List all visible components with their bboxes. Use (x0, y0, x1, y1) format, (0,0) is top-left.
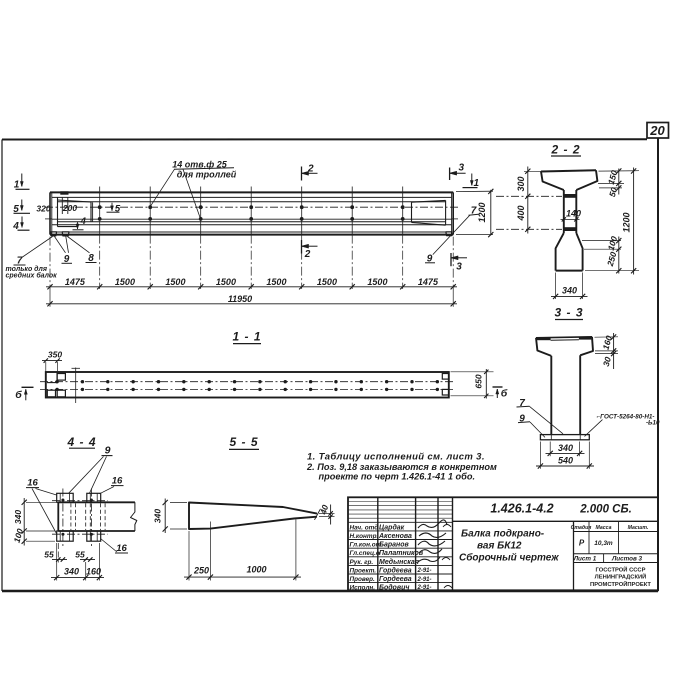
svg-text:20: 20 (649, 123, 665, 138)
svg-text:Р: Р (579, 539, 585, 548)
svg-text:Палатников: Палатников (379, 550, 424, 557)
svg-text:б: б (15, 389, 22, 401)
svg-text:1500: 1500 (115, 277, 135, 287)
svg-text:540: 540 (558, 455, 573, 465)
svg-text:1200: 1200 (477, 202, 487, 222)
svg-text:650: 650 (473, 374, 483, 388)
svg-text:проекте по черт 1.426.1-41 1: проекте по черт 1.426.1-41 1 обо. (319, 472, 476, 482)
svg-text:Бодович: Бодович (379, 584, 409, 592)
svg-text:4 - 4: 4 - 4 (66, 435, 96, 449)
svg-text:4: 4 (80, 216, 87, 227)
svg-text:Гордеева: Гордеева (379, 575, 412, 583)
svg-text:Гл.кон.от: Гл.кон.от (350, 542, 382, 549)
svg-text:11950: 11950 (228, 294, 252, 304)
svg-text:1.426.1-4.2: 1.426.1-4.2 (490, 502, 553, 516)
svg-text:320: 320 (36, 204, 50, 214)
svg-text:1500: 1500 (367, 277, 387, 287)
svg-text:Нач. отд: Нач. отд (350, 523, 379, 531)
svg-text:только для: только для (6, 265, 48, 273)
svg-text:1500: 1500 (266, 277, 286, 287)
svg-text:Сборочный чертеж: Сборочный чертеж (459, 552, 559, 564)
svg-text:Стадия: Стадия (571, 525, 592, 531)
svg-text:2: 2 (304, 249, 311, 260)
svg-text:1 - 1: 1 - 1 (232, 330, 261, 344)
svg-text:Баранов: Баранов (379, 542, 410, 549)
svg-text:400: 400 (516, 205, 526, 221)
svg-text:Масшт.: Масшт. (628, 525, 649, 531)
svg-text:160: 160 (86, 567, 101, 577)
svg-text:Проект.: Проект. (350, 567, 377, 574)
svg-text:5: 5 (115, 204, 121, 215)
svg-text:2-91-: 2-91- (417, 577, 432, 583)
svg-text:2-91-: 2-91- (417, 585, 432, 591)
svg-text:2. Поз. 9,18 заказываются в ко: 2. Поз. 9,18 заказываются в конкретном (306, 462, 497, 472)
svg-text:вая БК12: вая БК12 (477, 541, 522, 552)
svg-text:16: 16 (112, 476, 123, 487)
svg-text:200: 200 (62, 203, 77, 213)
svg-text:340: 340 (558, 443, 573, 453)
svg-text:Гордеева: Гордеева (379, 566, 412, 574)
svg-text:1500: 1500 (216, 277, 236, 287)
svg-text:ЛЕНИНГРАДСКИЙ: ЛЕНИНГРАДСКИЙ (595, 573, 647, 581)
svg-text:2: 2 (307, 164, 314, 175)
svg-text:250: 250 (193, 566, 209, 576)
svg-text:б: б (501, 388, 508, 400)
svg-text:350: 350 (48, 350, 62, 360)
svg-text:16: 16 (27, 478, 38, 489)
svg-text:ПРОМСТРОЙПРОЕКТ: ПРОМСТРОЙПРОЕКТ (590, 580, 651, 588)
svg-text:Исполн.: Исполн. (350, 585, 376, 592)
svg-text:3: 3 (456, 262, 462, 273)
svg-text:Масса: Масса (596, 525, 612, 531)
svg-text:55: 55 (75, 550, 85, 560)
svg-text:Провер.: Провер. (350, 576, 376, 583)
svg-text:Н.контр.: Н.контр. (350, 533, 379, 540)
svg-text:9: 9 (105, 445, 111, 457)
svg-text:140: 140 (566, 209, 581, 219)
svg-text:2.000 СБ.: 2.000 СБ. (579, 504, 632, 516)
svg-text:1475: 1475 (65, 277, 86, 287)
svg-text:1475: 1475 (418, 277, 439, 287)
svg-text:340: 340 (13, 510, 23, 524)
svg-text:2-91-: 2-91- (417, 568, 432, 574)
svg-text:2 - 2: 2 - 2 (550, 143, 580, 157)
svg-text:средних балок: средних балок (6, 272, 58, 280)
svg-text:1000: 1000 (246, 565, 266, 575)
svg-text:3: 3 (459, 163, 465, 174)
svg-text:340: 340 (562, 285, 577, 295)
svg-text:1500: 1500 (165, 277, 185, 287)
svg-text:1200: 1200 (622, 212, 632, 232)
svg-text:3 - 3: 3 - 3 (554, 306, 583, 320)
svg-text:Аксенова: Аксенова (378, 533, 412, 540)
svg-text:300: 300 (516, 176, 526, 191)
svg-text:Балка подкрано-: Балка подкрано- (461, 529, 545, 540)
svg-text:16: 16 (116, 543, 127, 554)
svg-text:1500: 1500 (317, 277, 337, 287)
svg-text:Рук. гр.: Рук. гр. (350, 559, 374, 566)
svg-text:Листов 3: Листов 3 (611, 556, 643, 563)
svg-text:Лист 1: Лист 1 (573, 556, 597, 563)
svg-text:Гл.спец.о: Гл.спец.о (350, 550, 380, 557)
svg-text:5 - 5: 5 - 5 (229, 435, 258, 449)
svg-text:340: 340 (153, 509, 163, 523)
svg-text:ГОССТРОЙ СССР: ГОССТРОЙ СССР (596, 566, 646, 574)
svg-text:Медынская: Медынская (379, 558, 419, 566)
svg-text:Цардак: Цардак (379, 523, 405, 531)
svg-text:55: 55 (44, 550, 54, 560)
svg-text:-Ь10: -Ь10 (646, 420, 660, 427)
svg-text:340: 340 (64, 567, 79, 577)
svg-text:10,3т: 10,3т (594, 540, 613, 547)
